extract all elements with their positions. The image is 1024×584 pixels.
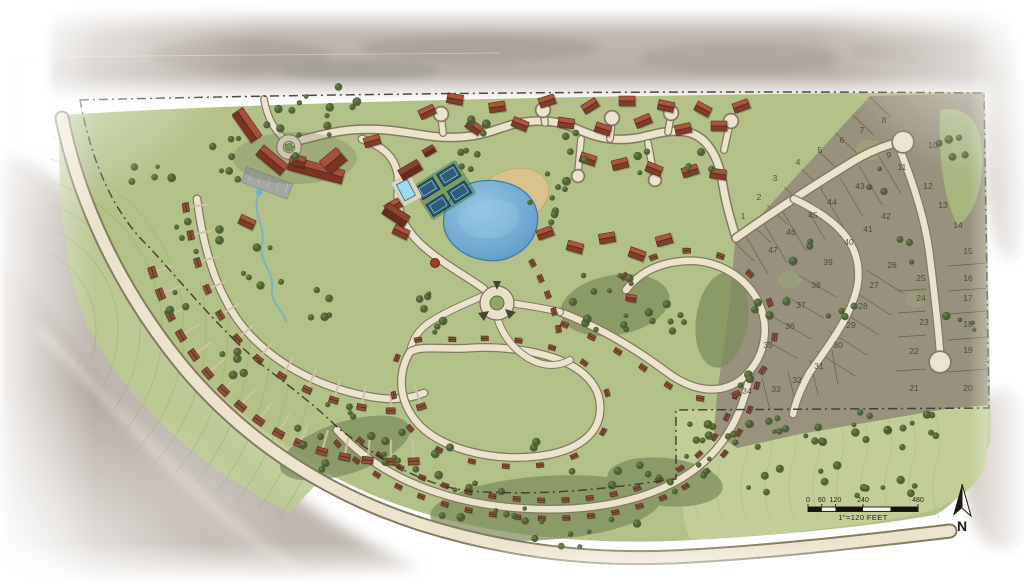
duplex-cabin	[557, 117, 576, 131]
cabin	[682, 247, 691, 254]
lot-number: 4	[796, 157, 801, 167]
lot-number: 46	[786, 227, 796, 237]
lot-number: 32	[792, 375, 802, 385]
lot-number: 40	[844, 237, 854, 247]
cabin	[480, 335, 488, 341]
lot-number: 13	[938, 200, 948, 210]
lot-number: 22	[909, 346, 919, 356]
lot-number: 44	[827, 197, 837, 207]
cabin	[408, 458, 421, 467]
north-label: N	[957, 518, 967, 534]
lot-number: 21	[909, 383, 919, 393]
lot-number: 41	[863, 224, 873, 234]
lot-number: 35	[763, 340, 773, 350]
lot-number: 36	[785, 321, 795, 331]
scale-tick-label: 120	[830, 497, 842, 504]
scale-tick-label: 480	[912, 497, 924, 504]
lot-number: 26	[887, 260, 897, 270]
lot-number: 31	[814, 361, 824, 371]
master-plan-page: 1234567891011121314151617181920212223242…	[0, 0, 1024, 584]
lot-number: 14	[953, 220, 963, 230]
duplex-cabin	[619, 96, 637, 108]
lot-number: 45	[808, 210, 818, 220]
duplex-cabin	[488, 101, 507, 115]
cabin	[488, 493, 497, 500]
scale-tick-label: 60	[818, 497, 826, 504]
duplex-cabin	[711, 121, 729, 133]
lot-number: 34	[742, 386, 752, 396]
scale-tick-label: 0	[806, 497, 810, 504]
lot-number: 27	[869, 280, 879, 290]
lot-number: 1	[741, 211, 746, 221]
cabin	[514, 337, 523, 344]
lot-number: 2	[757, 192, 762, 202]
lot-number: 33	[771, 384, 781, 394]
lot-number: 25	[916, 273, 926, 283]
cabin	[502, 464, 510, 470]
lot-number: 29	[846, 320, 856, 330]
cabin	[513, 496, 522, 502]
lot-number: 37	[796, 300, 806, 310]
scale-tick-label: 240	[857, 497, 869, 504]
cabin	[362, 456, 375, 465]
lot-number: 28	[858, 301, 868, 311]
lot-number: 23	[919, 317, 929, 327]
lot-number: 38	[811, 280, 821, 290]
gazebo	[431, 259, 440, 268]
master-plan-map: 1234567891011121314151617181920212223242…	[0, 0, 1024, 584]
lot-number: 24	[916, 293, 926, 303]
cabin	[537, 498, 545, 504]
cabin	[386, 408, 396, 415]
scale-caption: 1"=120 FEET	[838, 513, 887, 522]
lot-number: 42	[881, 211, 891, 221]
lot-number: 39	[823, 257, 833, 267]
lot-number: 30	[833, 340, 843, 350]
lot-number: 47	[768, 245, 778, 255]
lot-number: 3	[773, 173, 778, 183]
cabin	[448, 336, 456, 342]
